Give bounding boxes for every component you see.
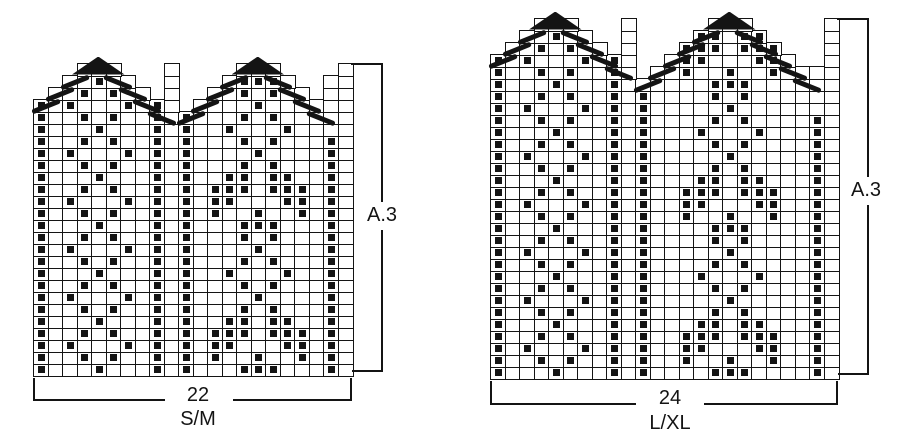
chart-cell [824,282,840,296]
measure-bracket-line-lxl [836,381,838,405]
stitch-count-label-lxl: 24 [630,387,710,410]
chart-cell [824,162,840,176]
chart-cell [621,54,637,68]
measure-bracket-line-lxl [490,403,636,405]
chart-cell [824,234,840,248]
chart-cell [824,318,840,332]
size-label-lxl: L/XL [630,412,710,435]
chart-cell [824,78,840,92]
chart-cell [824,54,840,68]
measure-bracket-line-lxl [837,18,867,20]
chart-cell [824,18,840,32]
measure-bracket-line-lxl [490,381,492,405]
chart-cell [824,354,840,368]
chart-cell [621,30,637,44]
chart-cell [824,246,840,260]
chart-cell [824,90,840,104]
chart-cell [824,102,840,116]
measure-bracket-line-lxl [867,18,869,177]
motif-label-lxl: A.3 [826,179,900,202]
chart-cell [824,210,840,224]
knitting-pattern-diagram: 22 S/M A.3 24 L/XL A.3 [0,0,900,446]
chart-cell [824,270,840,284]
chart-cell [824,294,840,308]
measure-bracket-line-lxl [704,403,838,405]
chart-cell [824,42,840,56]
chart-cell [824,222,840,236]
chart-cell [824,258,840,272]
chart-cell [824,114,840,128]
motif-label-sm: A.3 [342,204,422,227]
chart-cell [824,150,840,164]
measure-bracket-line-lxl [867,205,869,375]
chart-cell [824,330,840,344]
measure-bracket-line-lxl [838,373,869,375]
chart-cell [824,30,840,44]
chart-cell [824,342,840,356]
chart-cell [621,18,637,32]
size-label-sm: S/M [158,408,238,431]
chart-cell [824,66,840,80]
knitting-chart-lxl [0,0,900,446]
chart-cell [824,126,840,140]
chart-cell [824,138,840,152]
chart-cell [621,42,637,56]
chart-cell [824,306,840,320]
stitch-count-label-sm: 22 [158,384,238,407]
